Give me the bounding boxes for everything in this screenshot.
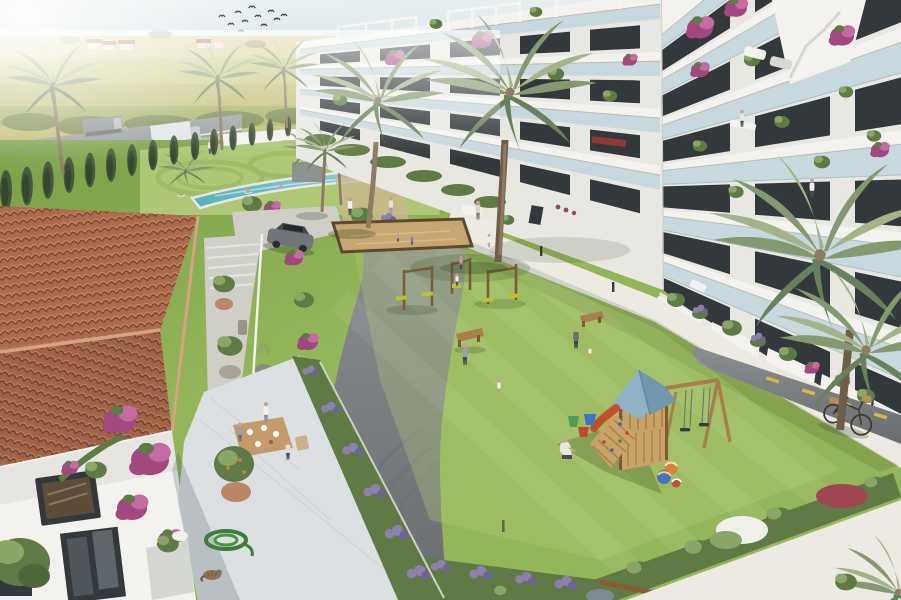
villa-french-door	[60, 527, 126, 600]
aerial-architectural-rendering	[0, 0, 901, 600]
villa-window	[35, 470, 101, 526]
plant-pot	[219, 365, 241, 379]
sun-glare	[0, 0, 540, 360]
scene-canvas	[0, 0, 901, 600]
